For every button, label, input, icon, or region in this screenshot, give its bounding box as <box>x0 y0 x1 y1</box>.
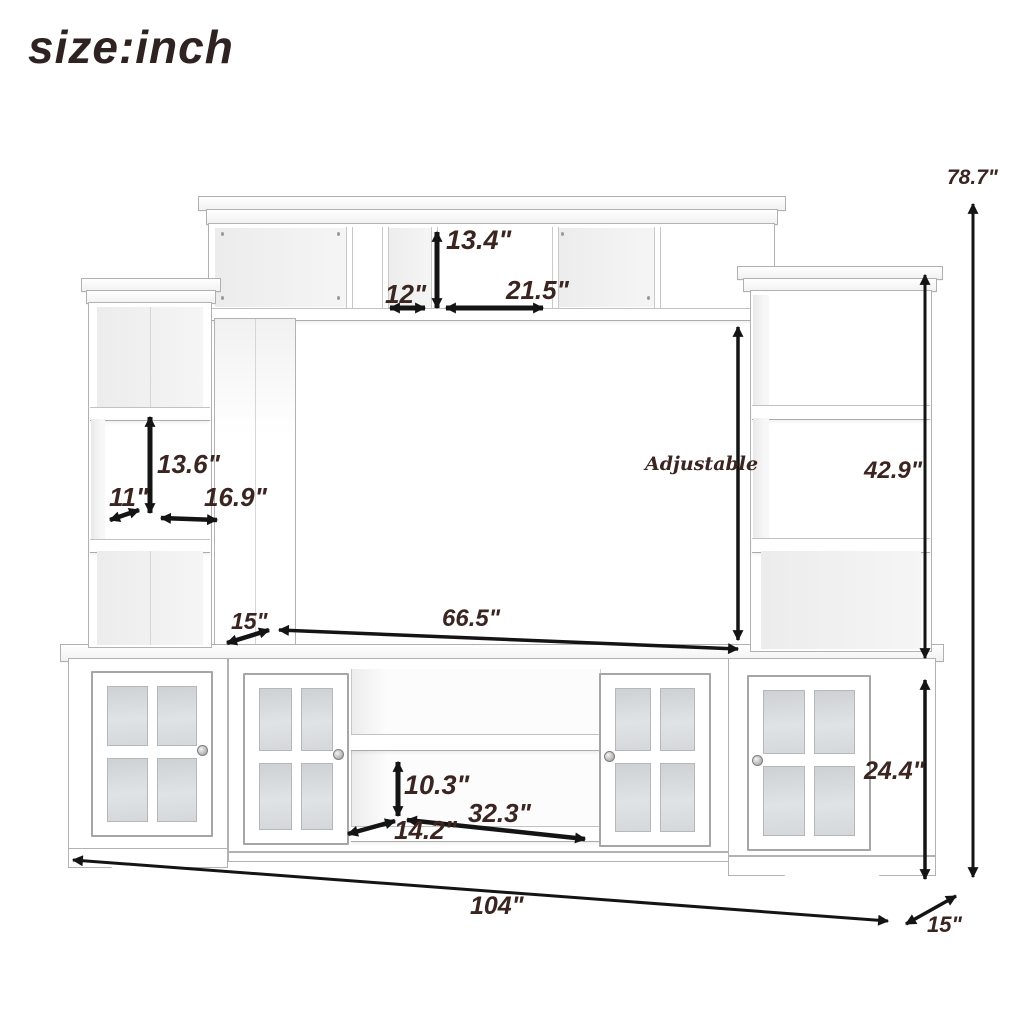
bridge-divider <box>654 227 661 308</box>
glass-pane <box>615 688 651 751</box>
dim-label-shelf-clearance: 10.3" <box>404 772 469 799</box>
tower-side-shade <box>753 418 769 538</box>
dim-label-adjustable-note: Adjustable <box>645 455 758 474</box>
dim-label-open-compartment-width: 32.3" <box>468 800 531 826</box>
bridge-divider <box>431 227 438 308</box>
dim-label-bridge-left-width: 12" <box>385 281 426 307</box>
glass-pane <box>259 763 292 831</box>
glass-pane <box>814 766 856 836</box>
glass-pane <box>107 758 148 822</box>
product-dimension-diagram: size:inch 13.4" 12" 21.5" 78.7" 42.9" Ad… <box>0 0 1024 1024</box>
console-adjustable-shelf <box>351 734 600 751</box>
bridge-divider <box>346 227 353 308</box>
glass-pane <box>615 763 651 832</box>
console-bottom-board <box>351 826 600 842</box>
door-knob <box>752 755 763 766</box>
dim-label-overall-width: 104" <box>470 894 524 919</box>
right-pier-glass-door <box>747 675 871 851</box>
glass-pane <box>763 690 805 754</box>
glass-pane <box>107 686 148 746</box>
left-pier-plinth <box>68 848 228 868</box>
page-title: size:inch <box>28 20 234 74</box>
glass-pane <box>157 758 198 822</box>
dim-label-console-height: 24.4" <box>864 759 925 784</box>
tower-shelf <box>752 405 930 420</box>
screw <box>221 232 224 236</box>
tower-side-shade <box>91 419 105 539</box>
left-pier-glass-door <box>91 671 213 837</box>
glass-pane <box>814 690 856 754</box>
console-right-glass-door <box>599 673 711 847</box>
dim-label-console-depth: 14.2" <box>394 817 457 843</box>
dim-label-tv-opening-width: 66.5" <box>442 607 500 631</box>
dim-label-bridge-right-width: 21.5" <box>506 277 569 303</box>
screw <box>337 296 340 300</box>
glass-pane <box>259 688 292 751</box>
screw <box>221 296 224 300</box>
dim-label-tower-depth: 11" <box>109 484 148 510</box>
screw <box>647 296 650 300</box>
screw <box>337 232 340 236</box>
dim-label-bridge-opening-height: 13.4" <box>446 227 511 254</box>
glass-pane <box>157 686 198 746</box>
door-knob <box>333 749 344 760</box>
glass-pane <box>660 688 696 751</box>
screw <box>561 232 564 236</box>
bridge-back-panel-left <box>215 228 347 307</box>
dim-label-pier-top-depth: 15" <box>231 610 268 633</box>
glass-pane <box>763 766 805 836</box>
tower-seam <box>150 307 151 407</box>
left-pier-cabinet <box>68 658 228 850</box>
tower-shelf <box>90 407 210 421</box>
glass-pane <box>660 763 696 832</box>
dim-label-overall-depth: 15" <box>927 914 962 936</box>
dim-label-overall-height: 78.7" <box>947 167 998 188</box>
tower-seam <box>150 551 151 645</box>
bridge-back-panel-right <box>554 228 655 307</box>
dim-label-tower-width: 16.9" <box>204 484 267 510</box>
glass-pane <box>301 688 334 751</box>
glass-pane <box>301 763 334 831</box>
tower-back-panel <box>761 551 921 649</box>
console-plinth <box>228 852 775 862</box>
tower-side-shade <box>753 295 769 405</box>
dim-label-tower-shelf-spacing: 13.6" <box>157 451 220 477</box>
door-knob <box>197 745 208 756</box>
right-pier-plinth <box>728 856 936 876</box>
door-knob <box>604 751 615 762</box>
dim-label-tower-opening-height: 42.9" <box>864 459 922 483</box>
console-left-glass-door <box>243 673 349 845</box>
